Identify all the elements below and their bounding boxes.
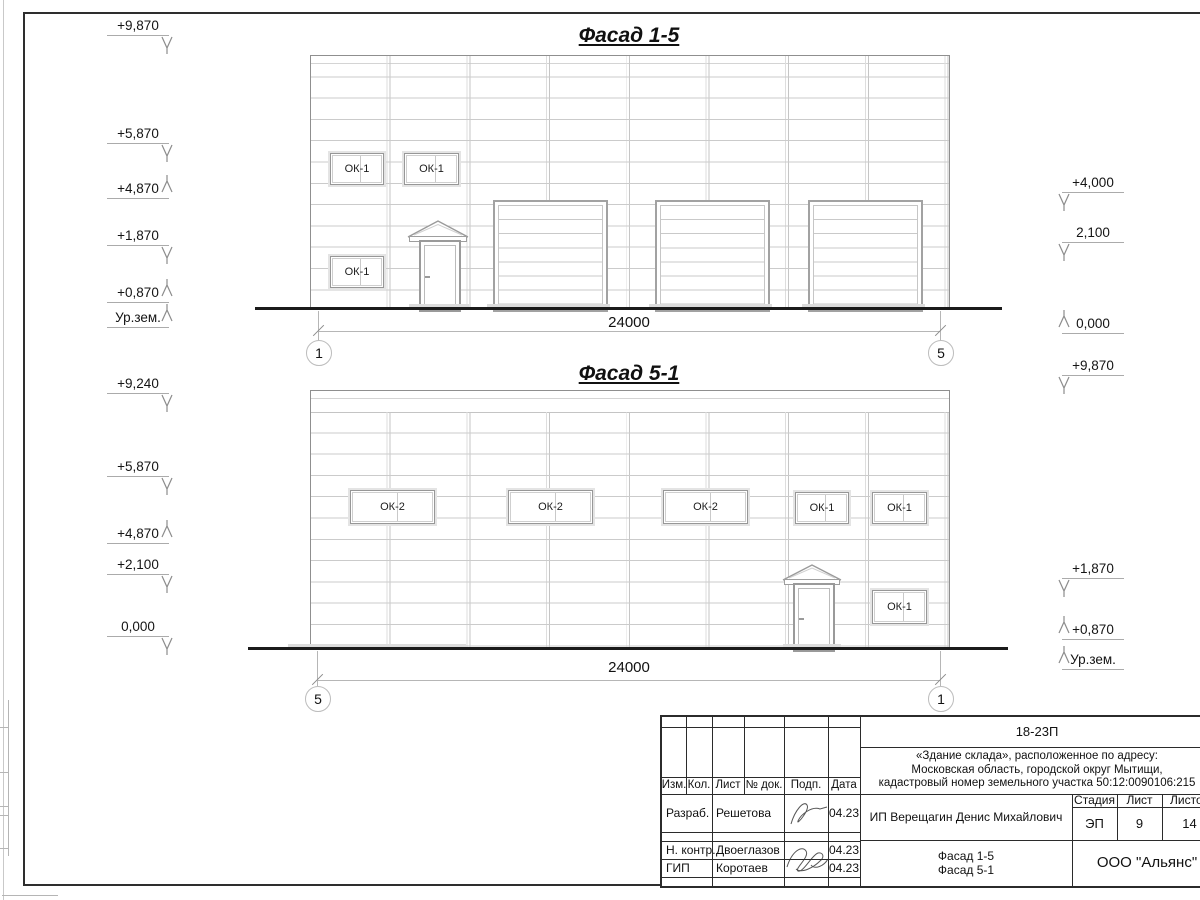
drawing-sheet: Фасад 1-5 ОК-1 ОК-1 ОК-1 24000 1 5 +9,87… <box>0 0 1200 900</box>
stamp-line-horizontal <box>1072 807 1200 808</box>
window: ОК-1 <box>330 153 384 185</box>
parapet-line <box>311 398 949 399</box>
facade-top-title: Фасад 1-5 <box>310 24 948 48</box>
stamp-role: ГИП <box>663 859 714 877</box>
level-mark: Ур.зем. <box>107 310 169 328</box>
level-mark: +5,870 <box>107 126 169 144</box>
level-mark: Ур.зем. <box>1062 652 1124 670</box>
door-handle <box>425 276 430 278</box>
sectional-gate <box>655 200 770 312</box>
level-mark: +4,870 <box>107 181 169 199</box>
level-arrow-down <box>160 144 174 162</box>
level-arrow-up <box>1057 646 1071 664</box>
window: ОК-1 <box>404 153 459 185</box>
ground-line <box>248 647 1008 650</box>
stamp-line-horizontal <box>860 747 1200 748</box>
stamp-line-horizontal <box>662 777 860 778</box>
level-arrow-up <box>160 279 174 297</box>
margin-tick <box>0 815 8 816</box>
stamp-name: Коротаев <box>713 859 786 877</box>
project-code: 18-23П <box>860 717 1200 747</box>
level-mark: +9,870 <box>107 18 169 36</box>
level-arrow-up <box>160 304 174 322</box>
stamp-line-vertical <box>1162 794 1163 840</box>
level-mark: +0,870 <box>1062 622 1124 640</box>
sheets-label: Листов <box>1162 794 1200 807</box>
level-mark: +9,240 <box>107 376 169 394</box>
project-address: «Здание склада», расположенное по адресу… <box>860 747 1200 794</box>
signature <box>785 797 829 831</box>
level-arrow-down <box>160 575 174 593</box>
axis-bubble: 5 <box>305 686 331 712</box>
axis-bubble: 1 <box>928 686 954 712</box>
level-mark: 0,000 <box>1062 316 1124 334</box>
entry-door <box>419 240 461 312</box>
window: ОК-2 <box>508 490 593 524</box>
stamp-line-vertical <box>860 717 861 886</box>
stamp-line-horizontal <box>662 841 860 842</box>
stamp-line-horizontal <box>662 877 860 878</box>
level-mark: +4,870 <box>107 526 169 544</box>
sheet-label: Лист <box>1117 794 1162 807</box>
title-block: Изм. Кол. Лист № док. Подп. Дата Разраб.… <box>660 715 1200 888</box>
stamp-col-data: Дата <box>828 777 860 794</box>
stamp-line-vertical <box>744 717 745 794</box>
level-arrow-down <box>160 637 174 655</box>
level-arrow-down <box>1057 579 1071 597</box>
margin-tick <box>2 895 58 896</box>
stamp-col-podp: Подп. <box>784 777 828 794</box>
panel-grid <box>311 412 949 649</box>
level-mark: +1,870 <box>1062 561 1124 579</box>
stamp-col-doc: № док. <box>744 777 784 794</box>
door-handle <box>799 618 804 620</box>
window: ОК-1 <box>795 492 849 524</box>
window: ОК-2 <box>350 490 435 524</box>
stamp-role: Н. контр. <box>663 841 714 859</box>
stamp-line-horizontal <box>662 794 1200 795</box>
stamp-date: 04.23 <box>828 859 860 877</box>
stamp-line-vertical <box>828 717 829 886</box>
dimension-line <box>318 331 940 332</box>
sheet-number: 9 <box>1117 807 1162 840</box>
stamp-col-kol: Кол. <box>686 777 712 794</box>
level-arrow-down <box>160 394 174 412</box>
stamp-line-vertical <box>1117 794 1118 840</box>
stage-label: Стадия <box>1072 794 1117 807</box>
stamp-line-horizontal <box>860 840 1200 841</box>
entry-door <box>793 583 835 652</box>
margin-tick <box>0 727 8 728</box>
level-mark: 0,000 <box>107 619 169 637</box>
stamp-line-vertical <box>712 717 713 886</box>
level-arrow-down <box>160 477 174 495</box>
level-mark: +1,870 <box>107 228 169 246</box>
level-arrow-down <box>1057 193 1071 211</box>
client-name: ИП Верещагин Денис Михайлович <box>860 794 1072 840</box>
window: ОК-1 <box>872 590 927 624</box>
stamp-name: Решетова <box>713 794 786 832</box>
level-mark: +4,000 <box>1062 175 1124 193</box>
level-mark: +5,870 <box>107 459 169 477</box>
level-arrow-up <box>1057 616 1071 634</box>
sheets-total: 14 <box>1162 807 1200 840</box>
level-arrow-down <box>1057 243 1071 261</box>
margin-tick <box>0 772 8 773</box>
stamp-col-izm: Изм. <box>662 777 686 794</box>
level-arrow-down <box>1057 376 1071 394</box>
stamp-line-vertical <box>686 717 687 794</box>
margin-tick <box>0 848 8 849</box>
drawing-title: Фасад 1-5 Фасад 5-1 <box>860 840 1072 886</box>
stamp-date: 04.23 <box>828 794 860 832</box>
stamp-line-horizontal <box>662 859 860 860</box>
sectional-gate <box>493 200 608 312</box>
level-mark: +2,100 <box>107 557 169 575</box>
window: ОК-1 <box>330 256 384 288</box>
level-mark: 2,100 <box>1062 225 1124 243</box>
window: ОК-1 <box>872 492 927 524</box>
margin-tick <box>8 700 9 856</box>
level-mark: +9,870 <box>1062 358 1124 376</box>
stamp-line-vertical <box>784 717 785 886</box>
level-arrow-up <box>1057 310 1071 328</box>
stage-value: ЭП <box>1072 807 1117 840</box>
level-arrow-down <box>160 36 174 54</box>
stamp-line-horizontal <box>662 832 860 833</box>
company-name: ООО "Альянс" <box>1072 840 1200 886</box>
stamp-date: 04.23 <box>828 841 860 859</box>
level-arrow-down <box>160 246 174 264</box>
margin-tick <box>0 806 8 807</box>
sheet-edge-line <box>3 0 4 900</box>
window: ОК-2 <box>663 490 748 524</box>
stamp-role: Разраб. <box>663 794 714 832</box>
dimension-line <box>317 680 940 681</box>
facade-bottom-title: Фасад 5-1 <box>310 362 948 386</box>
stamp-line-horizontal <box>662 727 860 728</box>
stamp-name: Двоеглазов <box>713 841 786 859</box>
dimension-value: 24000 <box>310 659 948 676</box>
level-mark: +0,870 <box>107 285 169 303</box>
dimension-value: 24000 <box>310 314 948 331</box>
sectional-gate <box>808 200 923 312</box>
level-arrow-up <box>160 520 174 538</box>
stamp-col-list: Лист <box>712 777 744 794</box>
ground-line <box>255 307 1002 310</box>
level-arrow-up <box>160 175 174 193</box>
